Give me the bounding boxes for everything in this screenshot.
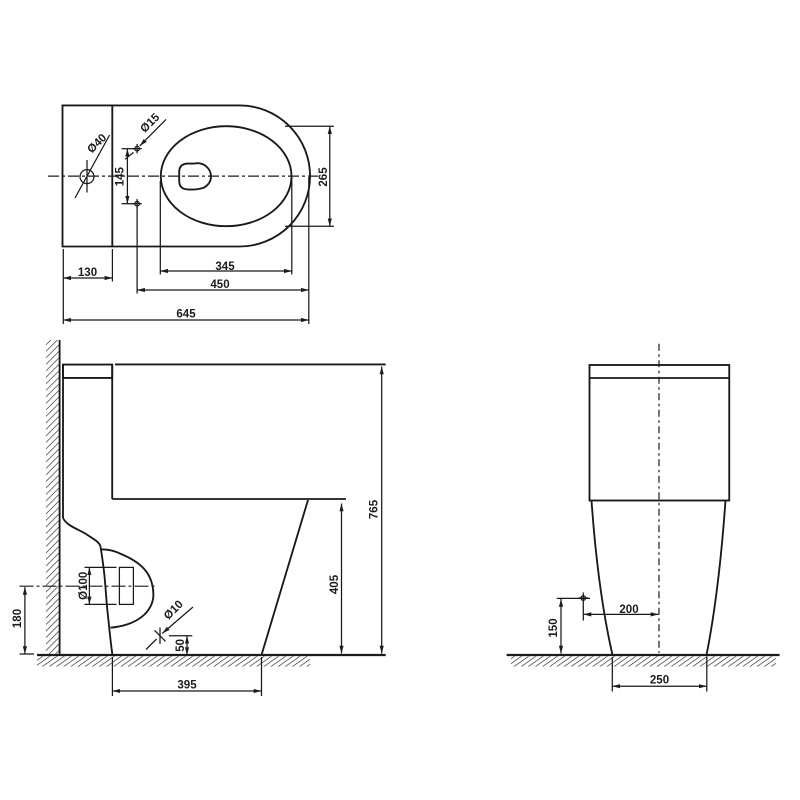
svg-text:150: 150 <box>548 618 560 637</box>
svg-text:765: 765 <box>369 499 381 519</box>
svg-text:145: 145 <box>114 167 126 187</box>
svg-text:645: 645 <box>176 309 196 321</box>
svg-text:180: 180 <box>12 609 24 628</box>
svg-text:50: 50 <box>175 639 187 652</box>
svg-text:265: 265 <box>318 167 330 187</box>
svg-text:130: 130 <box>78 267 97 279</box>
svg-text:250: 250 <box>650 675 669 687</box>
svg-text:345: 345 <box>215 261 235 273</box>
svg-text:200: 200 <box>619 604 638 616</box>
svg-text:395: 395 <box>177 679 197 691</box>
svg-text:405: 405 <box>329 574 341 594</box>
svg-text:450: 450 <box>210 279 229 291</box>
svg-text:Ø100: Ø100 <box>78 572 90 600</box>
